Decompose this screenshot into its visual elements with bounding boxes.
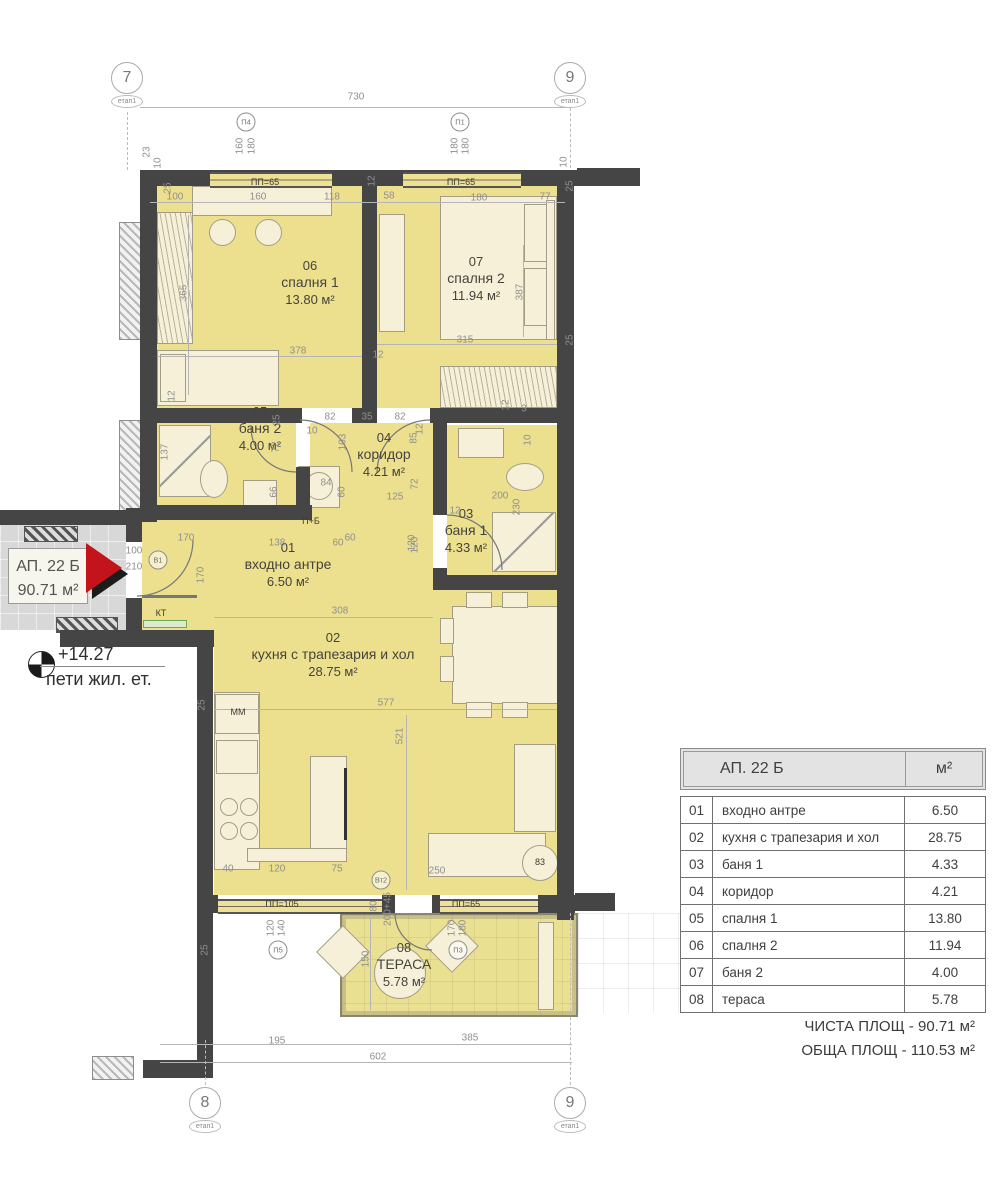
door-window-marker: П5 [269,941,288,960]
stove-burner [240,798,258,816]
room-area: 11.94 м² [447,288,505,304]
room-area: 4.33 м² [445,540,487,556]
installation-shaft [24,526,78,542]
apartment-area: 90.71 м² [9,579,87,603]
dimension-label: 210 [126,562,143,573]
dimension-label: 100 [167,192,184,203]
stove-burner [220,798,238,816]
room-number: 04 [357,430,410,446]
row-number: 01 [681,797,713,823]
tv [344,768,347,840]
opening-label: ПП=65 [251,177,279,187]
row-area: 13.80 [905,905,985,931]
shower [492,512,556,572]
vanity [379,214,405,332]
wall-segment [362,186,377,408]
dimension-label: 120 [266,920,277,937]
area-table-unit: м² [906,752,982,786]
dimension-label: 35 [361,412,372,423]
row-number: 07 [681,959,713,985]
wardrobe [440,366,557,408]
dimension-label: 25 [197,699,208,710]
table-row: 03баня 14.33 [681,851,985,878]
row-area: 4.33 [905,851,985,877]
dimension-label: 577 [378,698,395,709]
kitchen-island [247,848,347,862]
dimension-label: 230 [512,499,523,516]
kitchen-sink [216,740,258,774]
adjacent-wall-hatch [119,222,142,340]
grid-axis-number: 9 [554,62,586,94]
dimension-label: 195 [269,1036,286,1047]
grid-guide [205,1040,206,1085]
row-number: 05 [681,905,713,931]
dimension-label: 200+45 [383,892,394,926]
dimension-label: 12 [167,390,178,401]
table-row: 05спалня 113.80 [681,905,985,932]
dimension-label: 23 [142,146,153,157]
row-area: 4.00 [905,959,985,985]
wall-segment [197,895,218,913]
dimension-label: 365 [179,285,190,302]
dimension-label: 10 [153,157,164,168]
chair [255,219,282,246]
room-name: коридор [357,446,410,464]
dining-table [452,606,560,704]
toilet [200,460,228,498]
fixture-label: КТ [156,608,167,618]
dimension-label: 60 [344,533,355,544]
room-name: входно антре [245,556,332,574]
room-label: 06спалня 113.80 м² [281,258,339,308]
room-area: 6.50 м² [245,574,332,590]
opening-label: ПП=65 [447,177,475,187]
dimension-label: 103 [338,434,349,451]
dimension-label: 180 [247,138,258,155]
dimension-label: 180 [458,920,469,937]
dimension-label: 77 [539,192,550,203]
dimension-label: 140 [277,920,288,937]
wall-segment [296,467,310,505]
row-name: спалня 2 [713,932,905,958]
grid-guide [570,108,571,168]
floorplan-canvas: АП. 22 Б 90.71 м² +14.27 пети жил. ет. 0… [0,0,1000,1195]
chair [209,219,236,246]
dimension-label: 75 [331,864,342,875]
row-name: баня 1 [713,851,905,877]
dimension-label: 170 [196,567,207,584]
net-area-total: ЧИСТА ПЛОЩ - 90.71 м² [804,1018,975,1035]
row-number: 02 [681,824,713,850]
dimension-label: 72 [271,441,282,452]
row-number: 06 [681,932,713,958]
dimension-label: 10 [523,434,534,445]
dimension-label: 25 [200,944,211,955]
row-name: баня 2 [713,959,905,985]
dimension-label: 10 [306,426,317,437]
dimension-label: 160 [250,192,267,203]
room-label: 08ТЕРАСА5.78 м² [377,940,431,990]
dimension-label: 12 [367,175,378,186]
dimension-label: 25 [565,334,576,345]
dimension-label: 150 [361,951,372,968]
dimension-label: 521 [395,728,406,745]
apartment-label-box: АП. 22 Б 90.71 м² [8,548,88,604]
washbasin [458,428,504,458]
row-number: 08 [681,986,713,1012]
table-row: 08тераса5.78 [681,986,985,1012]
dimension-label: 180 [450,138,461,155]
dimension-line [140,107,570,108]
dimension-label: 10 [559,156,570,167]
dimension-label: 25 [565,180,576,191]
fixture-label: ММ [231,707,246,717]
room-name: кухня с трапезария и хол [252,646,415,664]
grid-axis-number: 8 [189,1087,221,1119]
dimension-label: 125 [387,492,404,503]
dimension-line [214,709,557,710]
grid-axis-marker: 9етап1 [554,62,586,108]
dimension-label: 12 [501,399,512,410]
room-name: баня 1 [445,522,487,540]
row-name: входно антре [713,797,905,823]
dimension-label: 170 [178,533,195,544]
dimension-label: 138 [269,538,286,549]
dimension-label: 85 [409,432,420,443]
grid-axis-stage: етап1 [189,1120,221,1133]
dimension-label: 12 [449,506,460,517]
dimension-label: 84 [320,478,331,489]
dimension-label: 40 [222,864,233,875]
fixture-label: П+Б [302,516,320,526]
dimension-label: 308 [332,606,349,617]
grid-axis-stage: етап1 [554,95,586,108]
room-number: 06 [281,258,339,274]
room-label: 04коридор4.21 м² [357,430,410,480]
door-window-marker: П1 [451,113,470,132]
chair [502,702,528,718]
dimension-line [150,202,565,203]
wall-segment [140,505,312,520]
grid-axis-marker: 9етап1 [554,1087,586,1133]
wall-segment [433,423,447,515]
wall-segment [140,170,157,522]
room-area: 28.75 м² [252,664,415,680]
dimension-label: 387 [515,284,526,301]
room-name: ТЕРАСА [377,956,431,974]
table-row: 07баня 24.00 [681,959,985,986]
wall-segment [575,893,615,911]
dimension-label: 160 [235,138,246,155]
room-area: 5.78 м² [377,974,431,990]
wall-segment [0,510,126,525]
dimension-label: 315 [457,335,474,346]
dimension-label: 60 [337,486,348,497]
grid-axis-stage: етап1 [111,95,143,108]
table-row: 04коридор4.21 [681,878,985,905]
dimension-line [188,215,189,395]
dimension-label: 80 [369,900,380,911]
kitchen-island [310,756,347,858]
door-window-marker: Вт2 [372,871,391,890]
door-window-marker: П4 [237,113,256,132]
gross-area-total: ОБЩА ПЛОЩ - 110.53 м² [801,1042,975,1059]
opening-label: ПП=105 [265,899,298,909]
row-area: 11.94 [905,932,985,958]
row-area: 4.21 [905,878,985,904]
chair [440,618,454,644]
dimension-label: 12 [372,350,383,361]
partition [142,595,197,598]
dimension-line [406,715,407,890]
room-number: 07 [447,254,505,270]
apartment-id: АП. 22 Б [9,555,87,579]
room-label: 01входно антре6.50 м² [245,540,332,590]
dimension-label: 82 [324,412,335,423]
dimension-label: 120 [269,864,286,875]
room-number: 08 [377,940,431,956]
row-area: 6.50 [905,797,985,823]
table-row: 02кухня с трапезария и хол28.75 [681,824,985,851]
chair [466,592,492,608]
dimension-label: 25 [272,414,283,425]
boiler [143,620,187,628]
dimension-label: 66 [269,486,280,497]
grid-axis-marker: 8етап1 [189,1087,221,1133]
dimension-line [214,617,433,618]
fixture-label: 83 [535,857,545,867]
wall-segment [577,168,640,186]
room-label: 07спалня 211.94 м² [447,254,505,304]
dimension-label: 82 [394,412,405,423]
terrace-bench [538,922,554,1010]
dimension-label: 602 [370,1052,387,1063]
dimension-label: 385 [462,1033,479,1044]
wall-segment [430,408,557,423]
row-name: тераса [713,986,905,1012]
dimension-line [160,1062,572,1063]
wall-segment [432,895,440,913]
chair [440,656,454,682]
dimension-label: 100 [126,546,143,557]
level-floor: пети жил. ет. [46,669,152,690]
room-area: 4.21 м² [357,464,410,480]
row-area: 5.78 [905,986,985,1012]
adjacent-wall-hatch [92,1056,134,1080]
chair [466,702,492,718]
dimension-label: 250 [429,866,446,877]
dimension-label: 180 [461,138,472,155]
window [218,899,382,914]
wall-segment [557,170,574,895]
area-table-rows: 01входно антре6.5002кухня с трапезария и… [680,796,986,1013]
wall-segment [433,575,557,590]
wall-segment [197,630,213,920]
row-name: кухня с трапезария и хол [713,824,905,850]
grid-axis-number: 9 [554,1087,586,1119]
dimension-label: 180 [471,193,488,204]
dimension-label: 60 [332,538,343,549]
door-window-marker: В1 [149,551,168,570]
wall-segment [538,895,575,913]
row-area: 28.75 [905,824,985,850]
dimension-label: 137 [160,444,171,461]
dimension-label: 72 [410,478,421,489]
dimension-label: 58 [383,191,394,202]
table-row: 01входно антре6.50 [681,797,985,824]
grid-axis-marker: 7етап1 [111,62,143,108]
entrance-arrow [86,543,122,593]
dimension-label: 730 [348,92,365,103]
room-name: спалня 1 [281,274,339,292]
toilet [506,463,544,491]
dimension-label: 170 [447,920,458,937]
door-window-marker: П3 [449,941,468,960]
dimension-label: 120 [407,535,418,552]
room-label: 02кухня с трапезария и хол28.75 м² [252,630,415,680]
room-number: 02 [252,630,415,646]
row-number: 04 [681,878,713,904]
grid-axis-number: 7 [111,62,143,94]
area-table: АП. 22 Б м² 01входно антре6.5002кухня с … [680,748,986,1013]
stove-burner [240,822,258,840]
area-table-title: АП. 22 Б [684,752,906,786]
room-area: 13.80 м² [281,292,339,308]
dimension-label: 3 [521,404,527,415]
level-line [40,666,165,667]
grid-guide [127,112,128,170]
armchair [514,744,556,832]
room-name: спалня 2 [447,270,505,288]
wall-segment [126,508,142,542]
area-table-header: АП. 22 Б м² [680,748,986,790]
chair [502,592,528,608]
grid-guide [570,913,571,1085]
dimension-label: 200 [492,491,509,502]
row-name: коридор [713,878,905,904]
dimension-label: 378 [290,346,307,357]
row-number: 03 [681,851,713,877]
table-row: 06спалня 211.94 [681,932,985,959]
row-name: спалня 1 [713,905,905,931]
room-number: 01 [245,540,332,556]
dimension-label: 118 [324,192,340,203]
level-elevation: +14.27 [58,644,114,665]
opening-label: ПП=65 [452,899,480,909]
grid-axis-stage: етап1 [554,1120,586,1133]
curtain [546,200,555,340]
dimension-line [160,1044,572,1045]
stove-burner [220,822,238,840]
